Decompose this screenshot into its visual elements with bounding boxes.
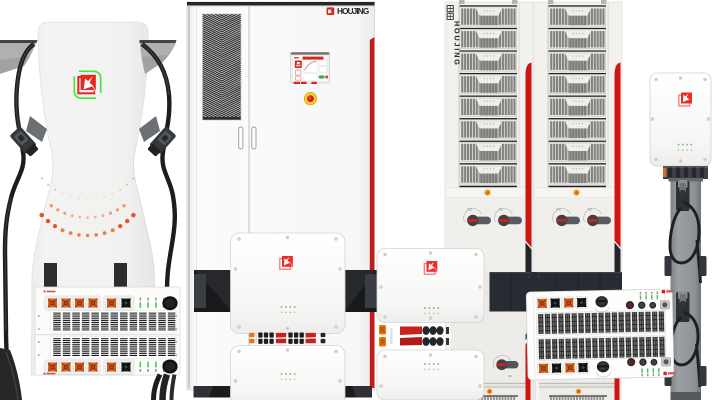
svg-text:HOUJING: HOUJING <box>452 21 461 65</box>
svg-text:HOUJING: HOUJING <box>337 7 370 16</box>
